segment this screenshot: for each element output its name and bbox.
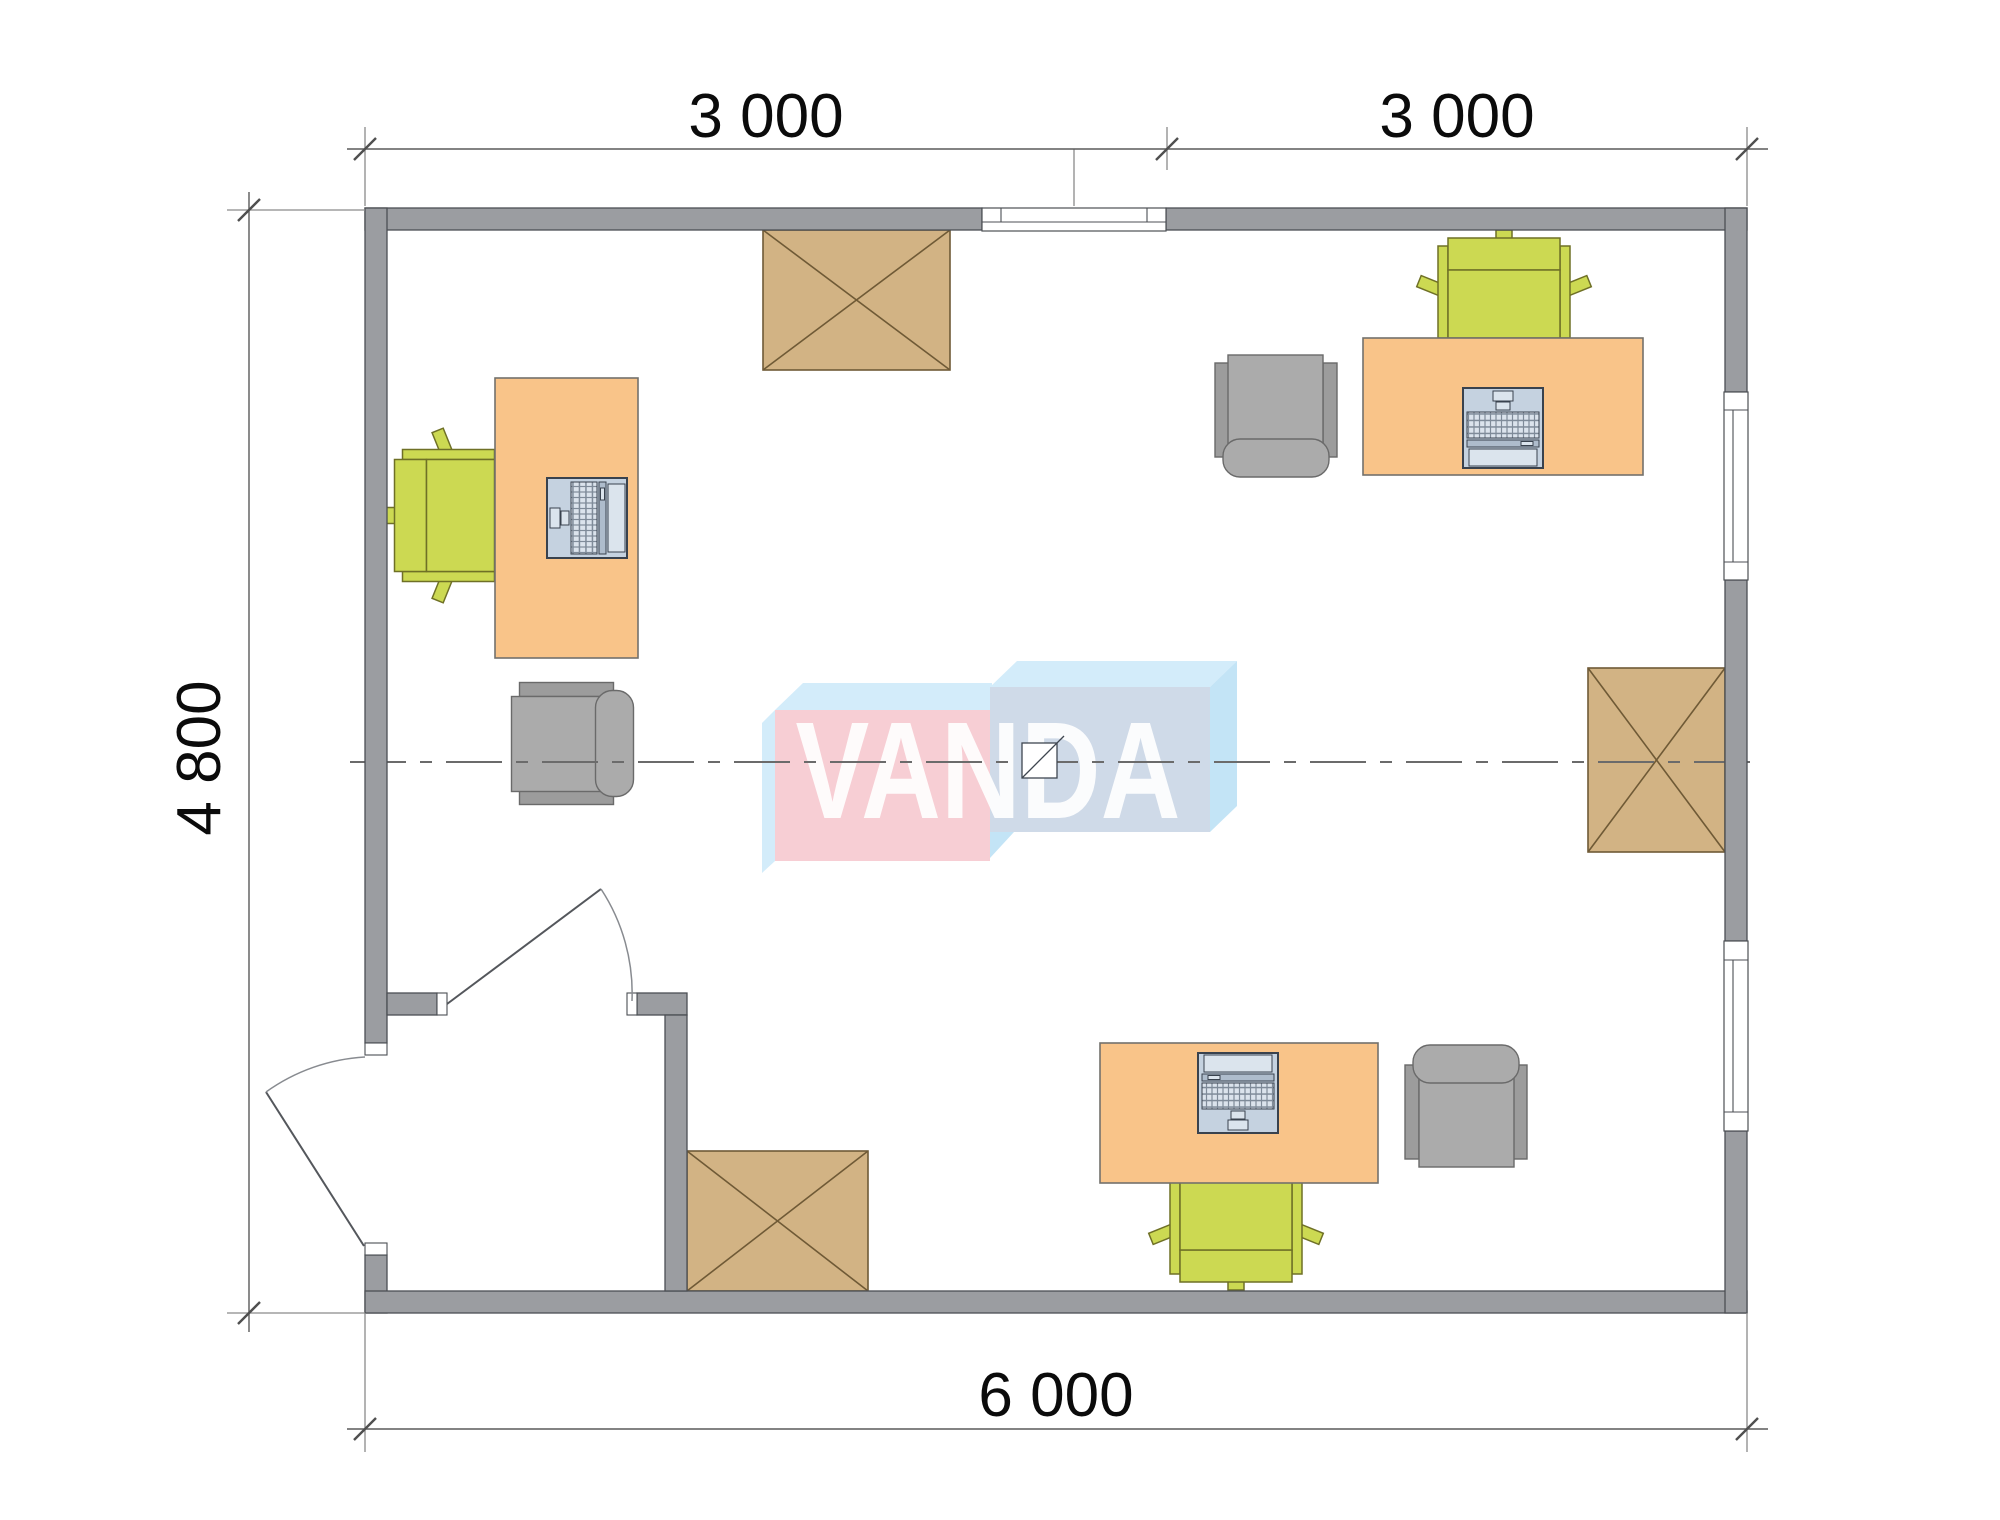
watermark-text: VANDA [796, 694, 1181, 848]
vestibule-wall-right [637, 993, 687, 1015]
dimension-top: 3 000 3 000 [347, 82, 1768, 206]
logo-left-flap [762, 710, 775, 873]
entrance-door [266, 1043, 387, 1255]
dimension-bottom: 6 000 [347, 1313, 1768, 1452]
door-jamb [365, 1243, 387, 1255]
office-chair-left [387, 428, 495, 603]
wall-top-left-segment [365, 208, 982, 230]
dimension-label-top-left: 3 000 [688, 82, 843, 151]
dimension-label-left: 4 800 [165, 680, 234, 835]
interior-door-leaf [447, 889, 601, 1004]
floor-plan-page: VANDA [0, 0, 2000, 1520]
laptop-top-right [1463, 388, 1543, 468]
logo-blue-top-flap [990, 661, 1237, 687]
dimension-label-bottom: 6 000 [978, 1361, 1133, 1430]
dimension-left: 4 800 [165, 192, 365, 1332]
interior-door [437, 889, 637, 1015]
vestibule-wall-vertical [665, 1015, 687, 1291]
window-right-upper [1724, 392, 1748, 580]
laptop-bottom-right [1198, 1053, 1278, 1133]
window-right-lower [1724, 941, 1748, 1131]
office-chair-top-right [1417, 230, 1592, 338]
entrance-door-leaf [266, 1092, 364, 1246]
interior-door-swing-arc [601, 889, 632, 1001]
armchair-left [512, 683, 634, 805]
wall-top-right-segment [1166, 208, 1747, 230]
wall-right-lower [1725, 1131, 1747, 1313]
logo-blue-side-flap [1210, 661, 1237, 832]
cabinet-top-left [763, 230, 950, 370]
vestibule-wall-left [387, 993, 437, 1015]
wall-left [365, 208, 387, 1043]
dimension-label-top-right: 3 000 [1379, 82, 1534, 151]
entrance-door-swing-arc [266, 1057, 365, 1092]
laptop-left [547, 478, 627, 558]
office-chair-bottom-right [1149, 1182, 1324, 1290]
cabinet-bottom [687, 1151, 868, 1291]
floor-plan-drawing: VANDA [0, 0, 2000, 1520]
door-jamb [365, 1043, 387, 1055]
wall-bottom [365, 1291, 1747, 1313]
window-top [982, 208, 1166, 231]
vanda-watermark-logo: VANDA [762, 661, 1237, 873]
cabinet-right-wall [1588, 668, 1725, 852]
wall-right-middle [1725, 580, 1747, 941]
wall-right-upper [1725, 208, 1747, 392]
armchair-bottom-right [1405, 1045, 1527, 1167]
door-jamb [437, 993, 447, 1015]
armchair-top-right [1215, 355, 1337, 477]
